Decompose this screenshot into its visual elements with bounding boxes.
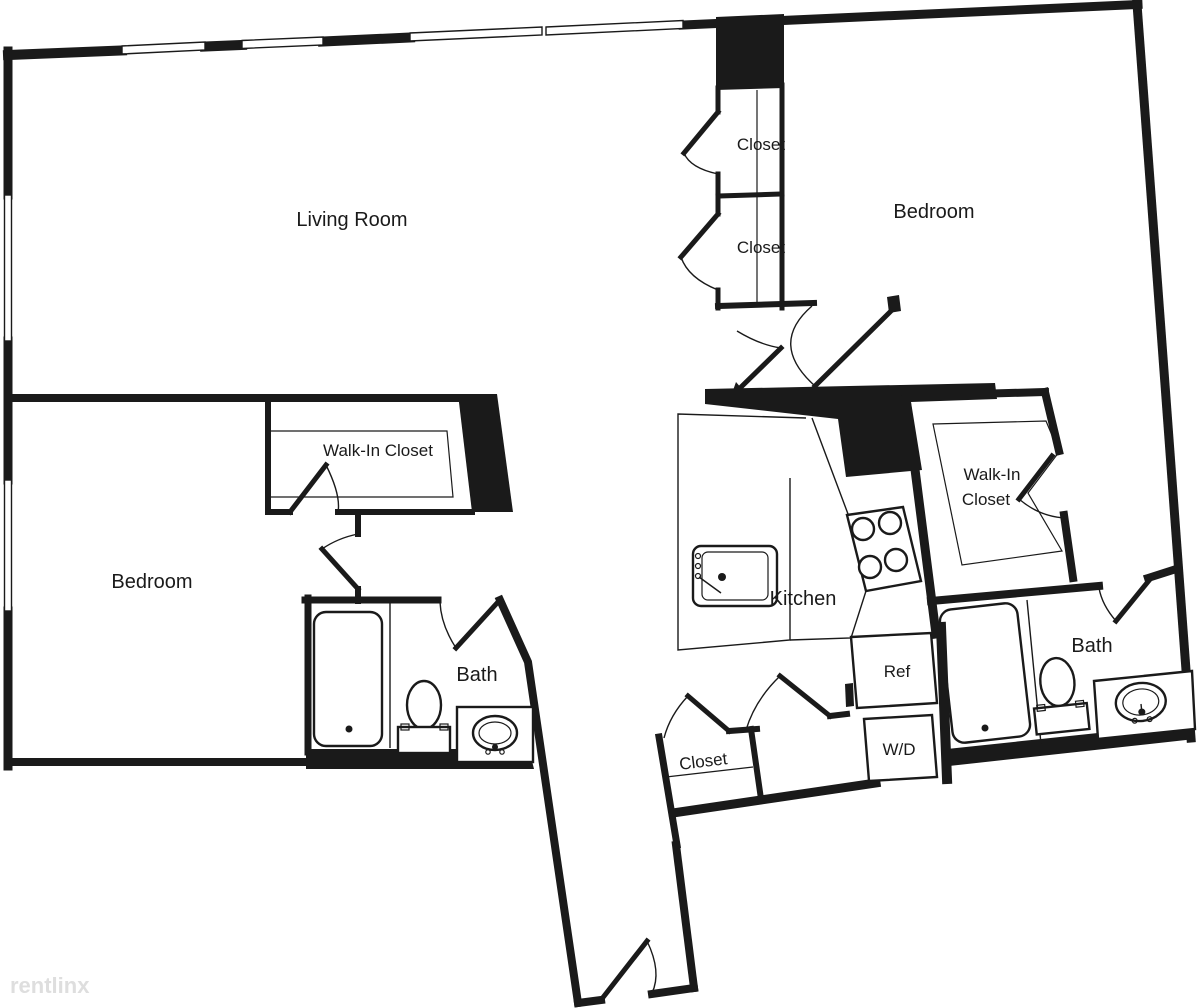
- wall-hall-bottom: [673, 783, 876, 813]
- bath-left: [305, 598, 533, 762]
- wicr-door-arc: [1019, 499, 1066, 518]
- wall-top-2: [205, 45, 242, 47]
- bedroom-left-door-leaf: [322, 549, 358, 589]
- toilet-left-tank: [398, 727, 450, 753]
- wall-entry-right-stub: [652, 988, 694, 994]
- closet-top-lower-door-arc: [681, 257, 718, 290]
- closet-top-lower-label: Closet: [737, 238, 785, 257]
- closet-top-upper-door-arc: [684, 153, 718, 174]
- wall-top-3: [323, 38, 410, 42]
- bathr-door-arc: [1099, 588, 1116, 621]
- bath-right-label: Bath: [1071, 635, 1112, 657]
- bathtub-right-group: [939, 602, 1032, 744]
- hall-door-arc: [737, 331, 781, 348]
- bathr-door-leaf: [1116, 578, 1151, 621]
- kitchen-label: Kitchen: [770, 588, 837, 610]
- bath-left-door-leaf: [456, 602, 498, 648]
- wall-wicr-north: [906, 392, 1045, 396]
- hall-door-1-leaf: [688, 696, 729, 731]
- bedroom-left-label: Bedroom: [111, 571, 192, 593]
- wicr-door-leaf: [1019, 456, 1052, 499]
- floor-plan-page: Living Room Bedroom Bedroom Closet Close…: [0, 0, 1200, 1008]
- watermark-logo: rentlinx: [10, 973, 90, 998]
- left-section-walls: [8, 394, 513, 601]
- stove-burner-2: [879, 512, 901, 534]
- closets-top: [681, 14, 814, 308]
- sink-left-faucet: [492, 744, 498, 750]
- hall-door-1-arc: [664, 696, 688, 738]
- toilet-right-bowl: [1038, 656, 1077, 707]
- closet-top-lower-door-leaf: [681, 214, 718, 257]
- wall-wic-angled-block: [458, 394, 513, 512]
- wall-closetb-right: [751, 729, 761, 799]
- bedroom-right-door-leaf: [815, 309, 893, 386]
- entry-door-leaf: [601, 941, 647, 1000]
- wall-wicr-south: [931, 586, 1099, 601]
- wall-hall-to-ref: [830, 714, 847, 716]
- toilet-right-group: [1029, 655, 1089, 734]
- bathtub-left-drain: [346, 726, 353, 733]
- bath-left-label: Bath: [456, 664, 497, 686]
- window-top-4: [546, 21, 683, 36]
- wall-closet-divider: [718, 194, 782, 196]
- walk-in-closet-right-label-2: Closet: [962, 490, 1010, 509]
- toilet-left-bowl: [407, 681, 441, 729]
- window-left-2: [5, 480, 12, 611]
- walk-in-closet-left-label: Walk-In Closet: [323, 441, 433, 460]
- wall-ref-east: [941, 627, 947, 779]
- window-top-2: [242, 37, 323, 49]
- wall-closet-bottom: [718, 303, 814, 306]
- window-top-3: [410, 27, 542, 41]
- hall-door-2-leaf: [780, 676, 830, 716]
- hall-door-leaf: [737, 348, 781, 391]
- walk-in-closet-right-label-1: Walk-In: [964, 465, 1021, 484]
- bathtub-right: [939, 602, 1032, 744]
- washer-dryer-label: W/D: [882, 740, 915, 759]
- window-left-1: [5, 195, 12, 341]
- entry-door-arc: [647, 941, 656, 993]
- wall-wicr-corner: [1045, 392, 1059, 451]
- bedroom-right-label: Bedroom: [893, 201, 974, 223]
- kitchen-sink: [693, 546, 777, 606]
- toilet-right-tank: [1034, 703, 1089, 734]
- wall-corridor-left: [500, 600, 578, 1003]
- wall-wicr-east: [1064, 515, 1073, 578]
- bedroom-right-door-arc: [791, 306, 815, 386]
- bathtub-right-drain: [982, 725, 989, 732]
- floor-plan-drawing: Living Room Bedroom Bedroom Closet Close…: [0, 0, 1200, 1008]
- wall-closet-top-block: [716, 14, 784, 90]
- stove-burner-3: [859, 556, 881, 578]
- living-room-label: Living Room: [296, 209, 407, 231]
- closet-top-upper-label: Closet: [737, 135, 785, 154]
- wall-corridor-right: [676, 845, 694, 988]
- wall-top-1: [8, 51, 122, 56]
- wall-right: [1137, 4, 1191, 738]
- stove-burner-1: [852, 518, 874, 540]
- wall-ref-stub: [845, 683, 854, 707]
- hall-door: [731, 331, 781, 396]
- wall-closetb-left: [659, 737, 677, 845]
- bedroom-left-door-arc: [322, 534, 358, 549]
- stove-burner-4: [885, 549, 907, 571]
- bottom-hall: [659, 627, 947, 845]
- hall-door-2-arc: [746, 676, 780, 730]
- window-top-1: [122, 42, 205, 54]
- bedroom-right-door: [791, 295, 901, 386]
- bath-left-door-arc: [440, 602, 456, 648]
- refrigerator-label: Ref: [884, 662, 911, 681]
- entry-corridor: [500, 600, 694, 1003]
- kitchen-counter-outline: [678, 414, 806, 650]
- wic-left-door-arc: [326, 465, 339, 512]
- kitchen-sink-drain: [718, 573, 726, 581]
- closet-top-upper-door-leaf: [684, 112, 718, 153]
- wic-left-door-leaf: [290, 465, 326, 512]
